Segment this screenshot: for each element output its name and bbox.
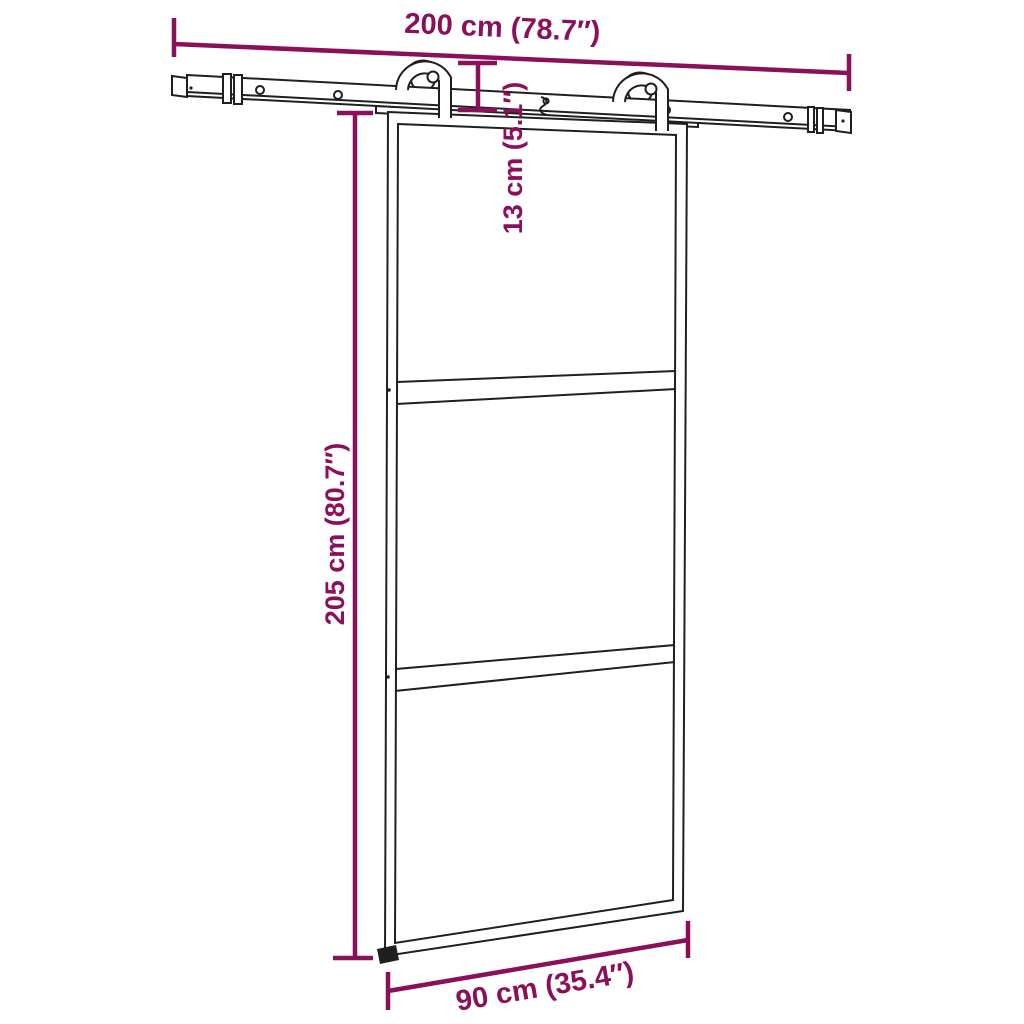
floor-guide [377,945,399,964]
frame-screw-icon [386,675,390,679]
door-outer-frame [385,112,687,956]
dimension-rail-length: 200 cm (78.7″) [174,8,849,91]
hanger-bolt-icon [428,72,439,83]
dimension-door-height: 205 cm (80.7″) [320,113,373,958]
hanger-drop-label: 13 cm (5.1″) [498,82,528,235]
hanger-bolt-icon [646,84,657,95]
rail-length-label: 200 cm (78.7″) [404,8,601,49]
frame-screw-icon [387,388,391,392]
door-height-label: 205 cm (80.7″) [320,443,350,626]
diagram-canvas: 200 cm (78.7″) 13 cm (5.1″) 205 cm (80.7… [0,0,1024,1024]
sliding-door [376,106,698,964]
product-dimension-diagram: 200 cm (78.7″) 13 cm (5.1″) 205 cm (80.7… [0,0,1024,1024]
rail-left-end-cap [172,76,187,97]
